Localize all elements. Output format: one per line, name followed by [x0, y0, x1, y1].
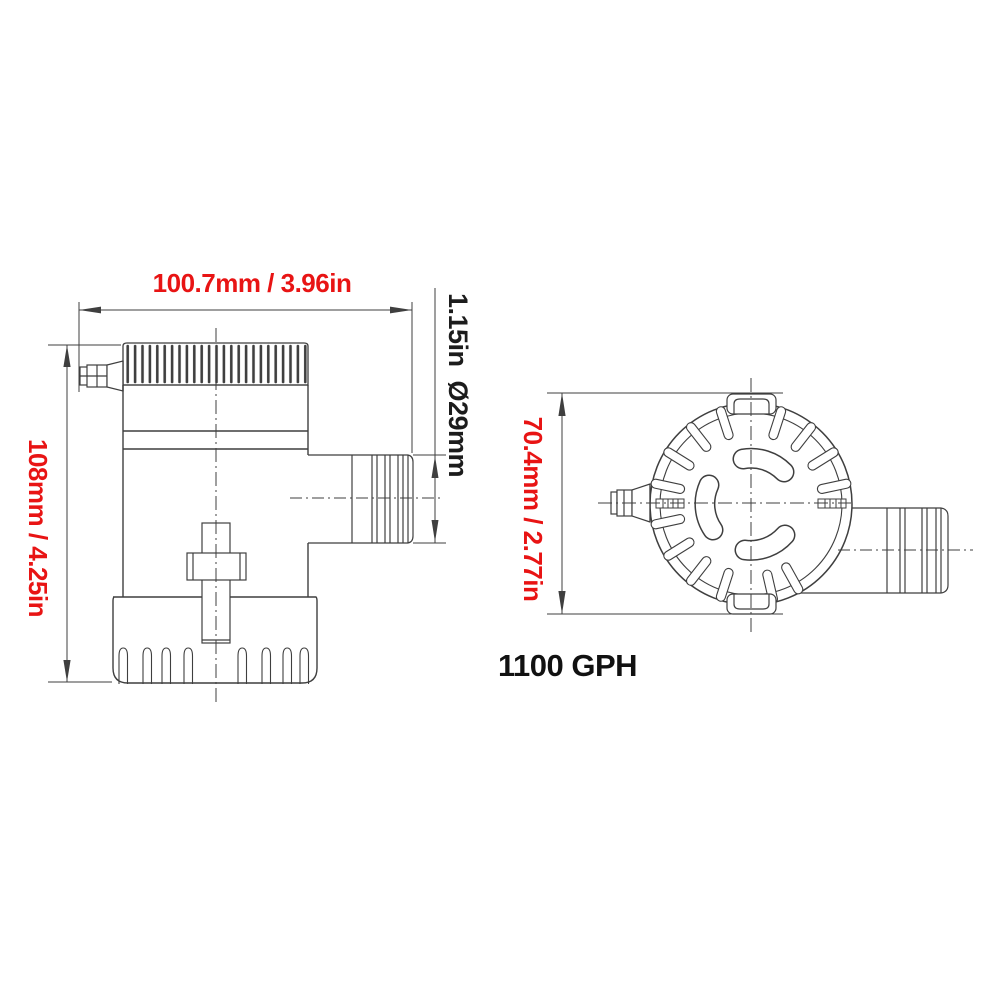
dimension-arrow: [79, 307, 101, 314]
top-view-drawing: [547, 378, 973, 632]
outlet-diameter-dimension-label: 1.15in Ø29mm: [443, 274, 473, 496]
front-view-drawing: [48, 288, 446, 702]
front-width-dimension-label: 100.7mm / 3.96in: [152, 268, 352, 298]
top-height-dimension-label: 70.4mm / 2.77in: [518, 399, 548, 619]
pump-dimension-diagram: 100.7mm / 3.96in 108mm / 4.25in 1.15in Ø…: [0, 0, 1001, 1001]
top-kidney-slots: [705, 458, 785, 550]
outlet-diameter-dimension: [432, 288, 439, 543]
dimension-arrow: [558, 591, 565, 614]
technical-drawing-canvas: [0, 0, 1001, 1001]
dimension-arrow: [432, 456, 439, 478]
front-height-dimension: [48, 345, 121, 682]
dimension-arrow: [432, 520, 439, 542]
dimension-arrow: [390, 307, 412, 314]
front-barb-fitting: [80, 361, 123, 391]
dimension-arrow: [63, 345, 70, 367]
front-outlet-port: [290, 455, 446, 543]
flow-rating-label: 1100 GPH: [498, 646, 648, 686]
dimension-arrow: [558, 393, 565, 416]
front-height-dimension-label: 108mm / 4.25in: [23, 418, 53, 638]
dimension-arrow: [63, 660, 70, 682]
top-outlet-pipe: [799, 508, 973, 593]
